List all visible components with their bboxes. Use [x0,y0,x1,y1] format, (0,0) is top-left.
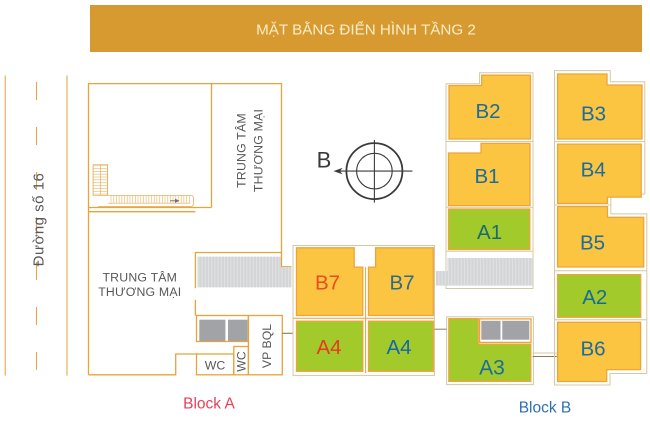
svg-text:Block A: Block A [183,396,235,413]
svg-text:B4: B4 [581,158,606,181]
svg-text:A4: A4 [386,336,411,359]
svg-text:B2: B2 [475,100,500,123]
svg-text:A2: A2 [582,286,607,309]
svg-text:THƯƠNG MẠI: THƯƠNG MẠI [252,109,266,192]
svg-text:B1: B1 [474,165,499,188]
svg-text:B3: B3 [581,103,606,126]
svg-text:A3: A3 [479,356,505,379]
svg-text:TRUNG TÂM: TRUNG TÂM [234,113,249,188]
svg-text:THƯƠNG MẠI: THƯƠNG MẠI [98,285,181,299]
svg-text:Đường số 16: Đường số 16 [31,173,48,267]
svg-text:B: B [317,148,332,173]
svg-text:B7: B7 [389,272,414,295]
svg-text:B6: B6 [580,337,605,360]
svg-text:WC: WC [235,351,249,372]
svg-text:TRUNG TÂM: TRUNG TÂM [102,270,177,285]
svg-text:A4: A4 [316,336,341,359]
svg-text:Block B: Block B [519,400,572,417]
svg-text:VP BQL: VP BQL [260,324,274,368]
svg-text:WC: WC [205,358,226,372]
svg-text:A1: A1 [477,221,502,244]
svg-text:B5: B5 [580,232,605,255]
svg-text:MẶT BẰNG ĐIỂN HÌNH TẦNG 2: MẶT BẰNG ĐIỂN HÌNH TẦNG 2 [256,21,476,39]
svg-text:B7: B7 [315,272,340,295]
